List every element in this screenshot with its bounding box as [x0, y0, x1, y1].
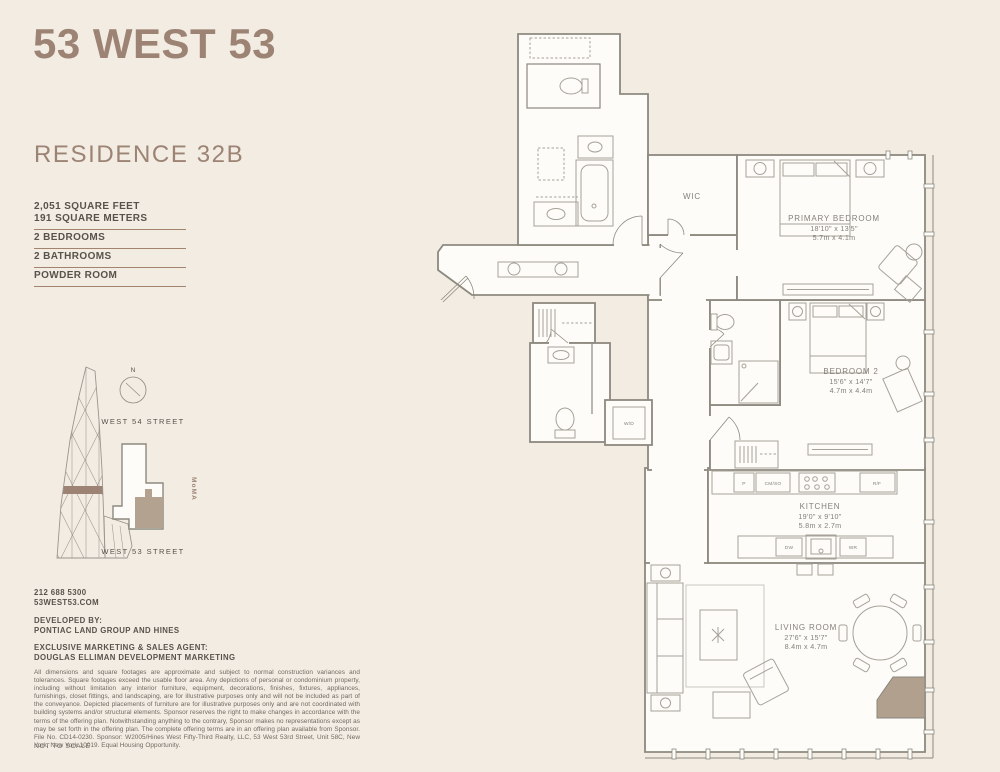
floorplan-brochure-page: 53 WEST 53 RESIDENCE 32B 2,051 SQUARE FE… — [0, 0, 1000, 772]
powder-toilet-icon — [555, 408, 575, 438]
floor-plan: WIC PRIMARY BEDROOM 18'10" x 13'5" 5.7m … — [438, 34, 934, 759]
street-top-label: WEST 54 STREET — [101, 417, 184, 426]
plan-graphics: N WEST 54 STREET MoMA WEST 53 STREET — [0, 0, 1000, 772]
site-map: WEST 54 STREET MoMA WEST 53 STREET — [101, 417, 197, 556]
street-bottom-label: WEST 53 STREET — [101, 547, 184, 556]
bath2-toilet-icon — [711, 314, 734, 330]
bedroom2-imperial: 15'6" x 14'7" — [829, 377, 872, 386]
dishwasher-label: DW — [785, 545, 794, 551]
compass-north-label: N — [131, 367, 136, 374]
bedroom2-metric: 4.7m x 4.4m — [830, 386, 873, 395]
fridge-label: R/F — [873, 481, 881, 487]
pantry-label: P — [742, 481, 745, 487]
bedroom2-label: BEDROOM 2 — [823, 367, 878, 376]
passage-outline — [645, 468, 708, 563]
wic-label: WIC — [683, 192, 701, 201]
living-room-metric: 8.4m x 4.7m — [785, 642, 828, 651]
living-room-imperial: 27'6" x 15'7" — [784, 633, 827, 642]
floor-32-highlight — [54, 486, 108, 494]
kitchen-metric: 5.8m x 2.7m — [799, 521, 842, 530]
primary-bedroom-label: PRIMARY BEDROOM — [788, 214, 880, 223]
kitchen-imperial: 19'0" x 9'10" — [798, 512, 841, 521]
primary-bedroom-metric: 5.7m x 4.1m — [813, 233, 856, 242]
hall-lower-outline — [648, 295, 710, 470]
compass-icon: N — [120, 367, 146, 403]
laundry-label: W/D — [624, 421, 634, 427]
speed-oven-label: CM/SO — [765, 481, 782, 487]
gallery-corridor-outline — [438, 245, 660, 295]
wine-fridge-label: WR — [849, 545, 858, 551]
primary-bedroom-imperial: 18'10" x 13'5" — [810, 224, 858, 233]
kitchen-label: KITCHEN — [800, 502, 841, 511]
room-living-outline — [645, 560, 925, 752]
toilet-icon — [560, 78, 588, 94]
moma-label: MoMA — [190, 477, 197, 501]
living-room-label: LIVING ROOM — [775, 623, 837, 632]
